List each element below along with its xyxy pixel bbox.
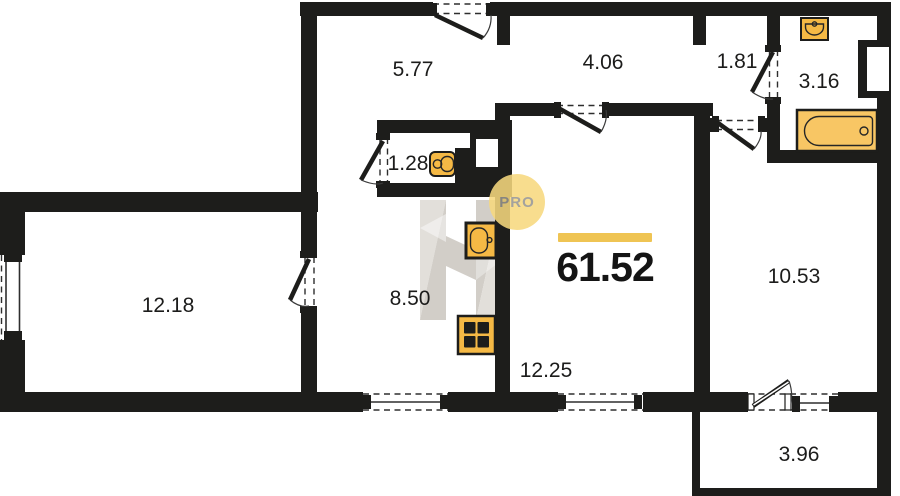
stove-icon xyxy=(458,316,495,354)
entrance-door xyxy=(429,3,494,38)
room-center-door xyxy=(554,102,609,132)
room-label-kitchen: 8.50 xyxy=(365,287,455,311)
bathtub-icon xyxy=(797,110,877,151)
room-label-passage: 1.81 xyxy=(692,50,782,74)
room-label-bathroom: 3.16 xyxy=(774,70,864,94)
room-label-wc: 1.28 xyxy=(363,152,453,176)
room-label-room-left: 12.18 xyxy=(123,294,213,318)
balcony-door xyxy=(748,381,838,412)
pro-watermark: PRO xyxy=(489,174,545,230)
total-area-accent-bar xyxy=(558,233,652,242)
room-right-door xyxy=(712,116,765,149)
room-left-door xyxy=(290,251,317,313)
room-label-balcony: 3.96 xyxy=(754,443,844,467)
room-left-window xyxy=(2,253,23,340)
room-label-hallway: 5.77 xyxy=(368,58,458,82)
room-label-room-center: 12.25 xyxy=(501,359,591,383)
room-label-room-right: 10.53 xyxy=(749,265,839,289)
total-area-label: 61.52 xyxy=(543,244,667,291)
pro-watermark-text: PRO xyxy=(499,194,535,211)
kitchen-sink-icon xyxy=(466,223,496,258)
bath-sink-icon xyxy=(801,18,828,40)
room-center-window xyxy=(558,394,643,410)
floor-plan: 5.77 4.06 1.81 3.16 1.28 12.18 8.50 12.2… xyxy=(0,0,900,496)
room-label-corridor: 4.06 xyxy=(558,51,648,75)
kitchen-window xyxy=(363,394,448,410)
